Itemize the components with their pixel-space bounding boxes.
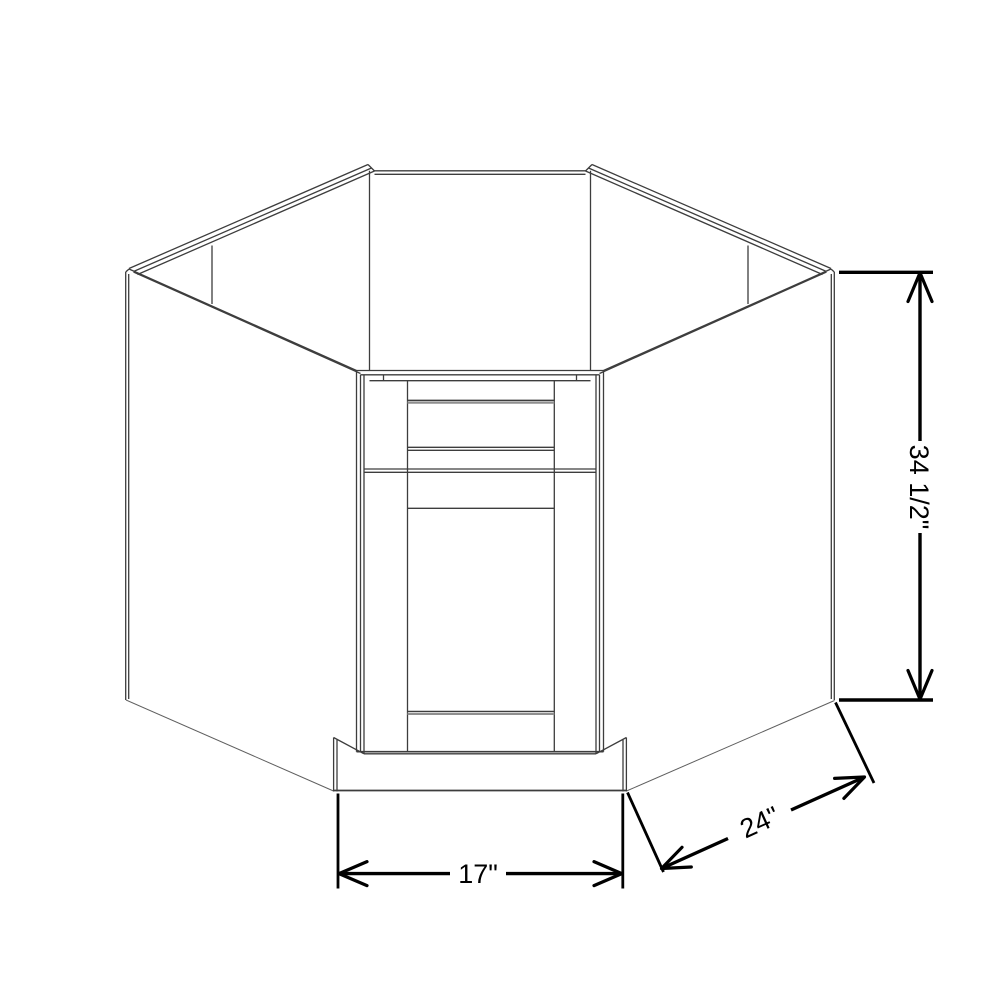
back-right-rail-end-cap bbox=[586, 165, 593, 172]
height-dimension-label: 34 1/2" bbox=[904, 445, 934, 530]
left-panel-top-edge-inner bbox=[134, 272, 361, 374]
right-side-panel bbox=[600, 269, 835, 791]
width-dimension-label: 17" bbox=[458, 859, 498, 889]
right-panel-top-edge-inner bbox=[600, 272, 827, 374]
left-panel-bottom-edge bbox=[126, 700, 334, 791]
depth-dimension-line-left bbox=[662, 839, 729, 869]
depth-dimension: 24" bbox=[628, 703, 875, 873]
top-rail-back-left bbox=[129, 165, 375, 275]
depth-extension-upper bbox=[836, 703, 875, 784]
back-left-rail-mid bbox=[134, 168, 372, 272]
toe-kick-right-top-slant bbox=[596, 738, 626, 754]
back-right-rail-inner bbox=[586, 171, 823, 275]
back-right-rail-mid bbox=[589, 168, 827, 272]
toe-kick bbox=[334, 738, 627, 792]
height-dimension: 34 1/2" bbox=[839, 272, 934, 700]
top-rail-back-center bbox=[375, 171, 586, 175]
drawer-front bbox=[408, 400, 555, 450]
depth-extension-lower bbox=[628, 793, 664, 873]
back-right-rail-outer bbox=[592, 165, 831, 269]
right-panel-top-edge-outer bbox=[604, 269, 832, 371]
corner-base-cabinet-technical-drawing: 34 1/2" 24" 17" bbox=[0, 0, 1000, 1000]
depth-dimension-label: 24" bbox=[735, 801, 783, 845]
front-face-frame bbox=[357, 371, 604, 754]
back-left-rail-inner bbox=[138, 171, 375, 275]
top-rail-back-right bbox=[586, 165, 832, 275]
depth-dimension-line-right bbox=[791, 777, 865, 810]
right-panel-top-corner bbox=[831, 269, 834, 272]
left-panel-top-edge-outer bbox=[129, 269, 357, 371]
right-panel-bottom-edge bbox=[627, 701, 835, 792]
back-left-rail-outer bbox=[129, 165, 368, 269]
cabinet-door bbox=[408, 508, 555, 714]
cabinet-body bbox=[126, 165, 835, 792]
left-side-panel bbox=[126, 269, 361, 791]
back-left-rail-end-cap bbox=[368, 165, 375, 172]
cabinet-interior-edges bbox=[212, 171, 748, 371]
drawing-canvas: 34 1/2" 24" 17" bbox=[0, 0, 1000, 1000]
toe-kick-left-top-slant bbox=[334, 738, 364, 754]
width-dimension: 17" bbox=[338, 794, 623, 890]
left-panel-top-corner bbox=[126, 269, 129, 272]
